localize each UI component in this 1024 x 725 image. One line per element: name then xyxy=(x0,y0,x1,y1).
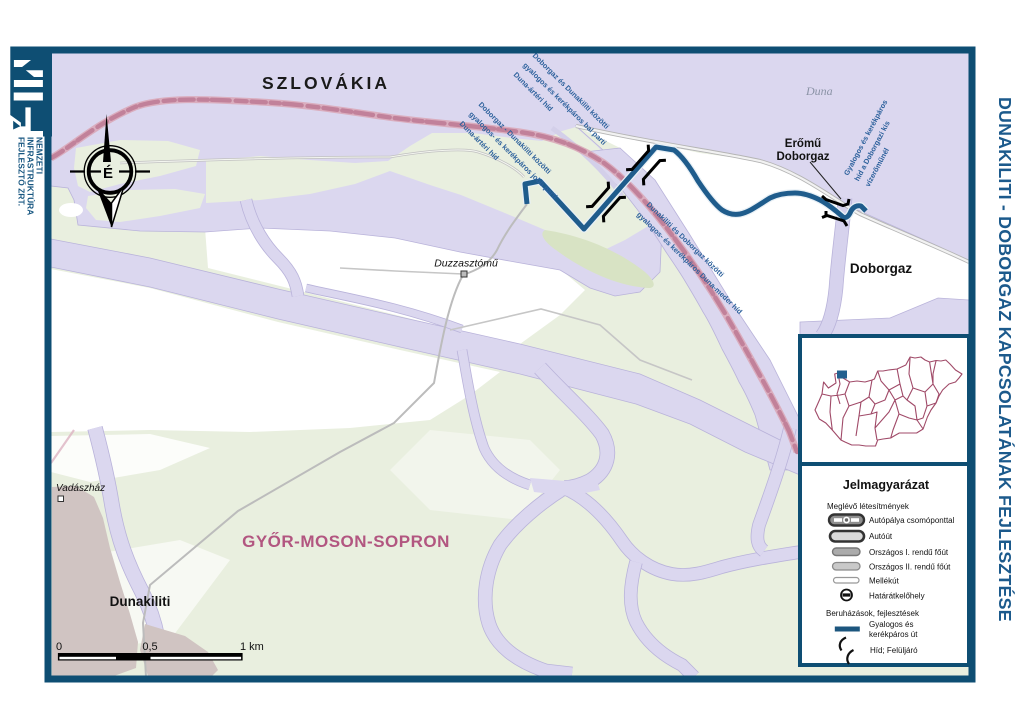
svg-text:Duna: Duna xyxy=(805,84,833,98)
svg-text:DUNAKILITI - DOBORGAZ KAPCSOLA: DUNAKILITI - DOBORGAZ KAPCSOLATÁNAK FEJL… xyxy=(995,97,1016,622)
svg-text:Doborgaz: Doborgaz xyxy=(776,151,829,163)
svg-text:0,5: 0,5 xyxy=(142,641,157,653)
svg-text:0: 0 xyxy=(56,641,62,653)
svg-text:1 km: 1 km xyxy=(240,641,264,653)
svg-text:É: É xyxy=(103,165,113,182)
svg-text:Autóút: Autóút xyxy=(869,532,893,541)
svg-text:Országos I. rendű főút: Országos I. rendű főút xyxy=(869,548,949,557)
svg-text:FEJLESZTŐ ZRT.: FEJLESZTŐ ZRT. xyxy=(17,137,28,206)
svg-text:Dunakiliti: Dunakiliti xyxy=(110,594,171,609)
svg-text:Határátkelőhely: Határátkelőhely xyxy=(869,592,925,601)
svg-text:Beruházások, fejlesztések: Beruházások, fejlesztések xyxy=(826,609,920,618)
svg-text:Meglévő létesítmények: Meglévő létesítmények xyxy=(827,502,910,511)
svg-text:Mellékút: Mellékút xyxy=(869,577,900,586)
svg-text:Duzzasztómű: Duzzasztómű xyxy=(434,258,499,270)
svg-text:SZLOVÁKIA: SZLOVÁKIA xyxy=(262,72,390,93)
svg-text:Vadászház: Vadászház xyxy=(56,483,105,494)
svg-text:Erőmű: Erőmű xyxy=(785,138,821,150)
svg-text:kerékpáros út: kerékpáros út xyxy=(869,630,918,639)
svg-text:Doborgaz: Doborgaz xyxy=(850,261,912,276)
svg-text:Gyalogos és: Gyalogos és xyxy=(869,620,913,629)
svg-text:Jelmagyarázat: Jelmagyarázat xyxy=(843,478,930,492)
svg-text:GYŐR-MOSON-SOPRON: GYŐR-MOSON-SOPRON xyxy=(242,532,450,551)
svg-text:Országos II. rendű főút: Országos II. rendű főút xyxy=(869,563,951,572)
svg-text:Híd; Felüljáró: Híd; Felüljáró xyxy=(870,646,918,655)
svg-text:Autópálya csomóponttal: Autópálya csomóponttal xyxy=(869,516,955,525)
